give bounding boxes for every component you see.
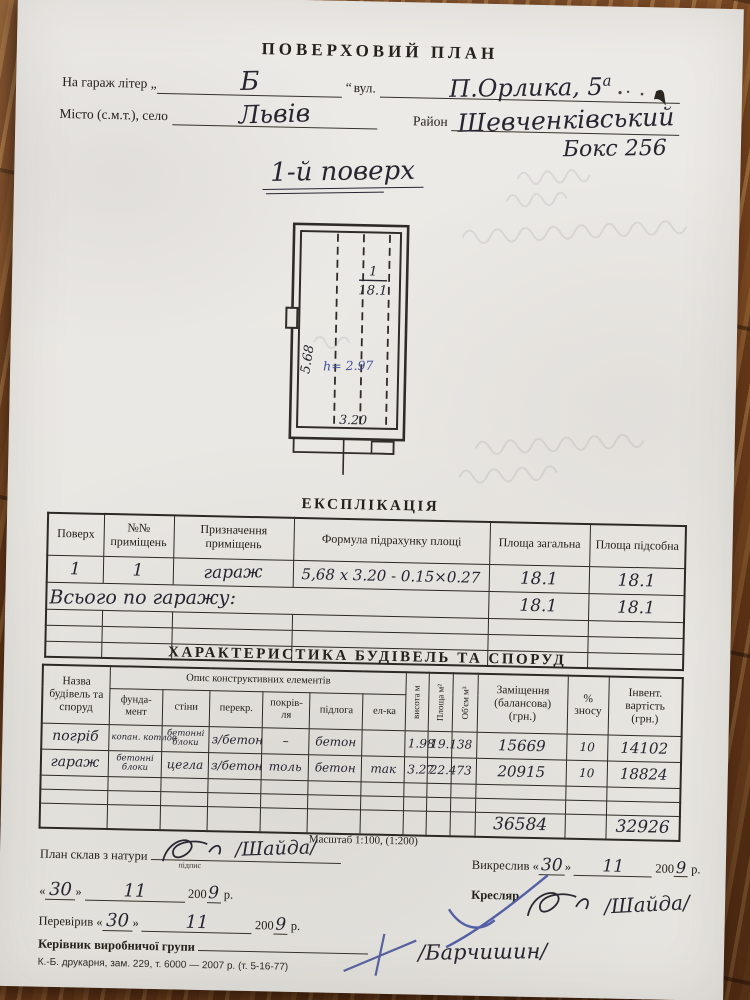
empty-cell <box>404 796 427 810</box>
empty-cell <box>451 783 476 798</box>
empty-cell <box>40 775 108 790</box>
empty-cell <box>161 777 208 792</box>
plan-dim-bottom: 3.20 <box>339 412 367 428</box>
col-header-formula: Формула підрахунку площі <box>293 518 490 564</box>
empty-cell <box>565 814 606 840</box>
paper-sheet: ПОВЕРХОВИЙ ПЛАН На гараж літер „ Б “ вул… <box>0 0 744 1000</box>
col-header-replacement: Заміщення (балансова) (грн.) <box>477 674 568 734</box>
empty-cell <box>161 791 208 806</box>
cell-room-no: 1 <box>103 556 174 584</box>
cell-area: 22.4 <box>427 757 452 784</box>
photo-of-document: ПОВЕРХОВИЙ ПЛАН На гараж літер „ Б “ вул… <box>0 0 750 1000</box>
cell-height: 1.98 <box>405 730 428 756</box>
empty-cell <box>261 793 308 808</box>
col-header-volume: Об'єм м³ <box>453 673 479 732</box>
empty-cell <box>403 810 426 835</box>
empty-cell <box>208 778 261 793</box>
cell-wear: 10 <box>567 734 608 761</box>
cell-walls: цегла <box>161 751 209 778</box>
street-label: вул. <box>354 80 377 96</box>
cell-roof: – <box>262 727 310 754</box>
empty-cell <box>426 811 451 837</box>
date-month: 11 <box>185 912 208 933</box>
empty-cell <box>606 801 680 817</box>
cell-roof: толь <box>261 753 309 780</box>
head-row: Керівник виробничої групи /Барчишин/ <box>38 937 368 959</box>
cell-floor: бетон <box>309 728 363 755</box>
empty-cell <box>207 806 261 832</box>
empty-cell <box>160 805 208 831</box>
cell-inventory: 18824 <box>607 761 681 789</box>
district-line: Шевченківський <box>451 105 679 136</box>
empty-cell <box>565 800 606 815</box>
empty-cell <box>360 809 403 835</box>
quote-close: » <box>75 884 82 898</box>
empty-cell <box>40 803 108 829</box>
head-signature-line: /Барчишин/ <box>198 950 368 955</box>
draftsman-signature: /Шайда/ <box>604 890 691 918</box>
col-header-room-no: №№ приміщень <box>103 514 174 557</box>
cell-inventory: 14102 <box>607 735 681 763</box>
district-value: Шевченківський <box>457 104 675 136</box>
col-header-inventory: Інвент. вартість (грн.) <box>608 677 683 737</box>
quote-close: “ <box>346 80 352 96</box>
plan-room-area: 18.1 <box>358 283 387 299</box>
cell-height: 3.27 <box>405 756 428 782</box>
date-year-digit: 9 <box>208 883 219 903</box>
form-line-city: Місто (с.м.т.), село Львів Район Шевченк… <box>59 97 739 137</box>
garage-letter-line: Б <box>157 67 343 98</box>
city-line: Львів <box>172 99 377 129</box>
col-header-wear: % зносу <box>567 676 609 735</box>
district-label: Район <box>413 113 448 130</box>
col-header-floor: Поверх <box>47 513 104 556</box>
empty-cell <box>307 808 361 834</box>
cell-area-total: 18.1 <box>489 564 590 593</box>
plan-height-note: h= 2.97 <box>323 358 374 374</box>
bleed-through-marks <box>447 418 700 500</box>
col-header-walls: стіни <box>162 689 210 726</box>
empty-cell <box>308 780 361 795</box>
empty-cell <box>108 790 161 805</box>
cell-area-aux: 18.1 <box>589 566 686 595</box>
street-value: П.Орлика, 5а <box>449 74 612 101</box>
cell-electric: так <box>362 755 406 782</box>
col-header-roof: покрів- ля <box>262 691 310 728</box>
col-header-area-aux: Площа підсобна <box>589 524 686 568</box>
plan-dim-left: 5.68 <box>298 344 317 375</box>
head-label: Керівник виробничої групи <box>38 937 195 954</box>
floor-plan-drawing: 1 18.1 5.68 h= 2.97 3.20 <box>281 222 416 481</box>
empty-cell <box>208 792 261 807</box>
date-month: 11 <box>123 880 146 901</box>
empty-cell <box>427 783 452 798</box>
cell-replacement: 15669 <box>477 732 567 760</box>
street-sup: а <box>602 72 611 90</box>
floor-heading-underline <box>266 192 384 195</box>
cell-wear: 10 <box>566 760 607 787</box>
date-day: 30 <box>106 910 129 931</box>
cell-electric <box>362 729 406 756</box>
empty-cell <box>308 794 361 809</box>
empty-cell <box>450 811 475 837</box>
quote-close: » <box>132 916 139 930</box>
col-header-area-total: Площа загальна <box>489 522 590 566</box>
cell-foundation: копан. котлов. <box>109 724 163 751</box>
pen-cross-stroke <box>337 933 428 979</box>
street-line: П.Орлика, 5а <box>380 72 680 104</box>
floor-heading: 1-й поверх <box>262 156 423 190</box>
col-header-electric: ел-ка <box>363 693 407 730</box>
print-shop-footer: К.-Б. друкарня, зам. 229, т. 6000 — 2007… <box>38 957 289 973</box>
city-label: Місто (с.м.т.), село <box>59 106 168 124</box>
cell-total-inventory: 32926 <box>606 814 680 841</box>
door-axis-tick <box>343 439 344 475</box>
col-header-foundation: фунда- мент <box>109 688 163 725</box>
characteristics-table: Назва будівель та споруд Опис конструкти… <box>39 664 684 842</box>
city-value: Львів <box>238 100 310 127</box>
total-label-text: Всього по гаражу: <box>49 586 236 609</box>
garage-label: На гараж літер „ <box>62 74 157 92</box>
year-suffix: р. <box>224 888 234 902</box>
date-day: 30 <box>49 879 72 900</box>
garage-letter-value: Б <box>240 69 259 95</box>
plan-room-number: 1 <box>369 264 378 279</box>
cell-area-aux: 18.1 <box>588 593 685 622</box>
cell-total-replacement: 36584 <box>475 812 565 839</box>
vertical-header-height: висота м <box>412 685 422 719</box>
wall-notch <box>286 308 297 328</box>
col-header-floor: підлога <box>309 692 363 729</box>
year-suffix: р. <box>691 862 701 876</box>
cell-name: погріб <box>41 723 109 750</box>
empty-cell <box>261 779 308 794</box>
empty-cell <box>45 625 101 642</box>
cell-ceiling: з/бетон <box>209 726 263 753</box>
empty-cell <box>108 776 161 791</box>
cell-area-total: 18.1 <box>488 591 589 620</box>
empty-cell <box>101 626 171 643</box>
empty-cell <box>566 786 607 801</box>
empty-cell <box>107 804 161 830</box>
cell-ceiling: з/бетон <box>208 752 262 779</box>
plan-made-label: План склав з натури <box>40 847 148 863</box>
cell-foundation: бетонні блоки <box>108 750 162 777</box>
page-title: ПОВЕРХОВИЙ ПЛАН <box>17 34 743 69</box>
date-year-digit: 9 <box>676 858 687 877</box>
col-header-purpose: Призначення приміщень <box>173 515 294 560</box>
bleed-through-marks <box>457 148 701 250</box>
empty-cell <box>102 610 172 627</box>
cell-purpose: гараж <box>173 558 293 587</box>
drafter-signature: /Шайда/ <box>235 838 317 860</box>
cell-formula: 5,68 х 3.20 - 0.15×0.27 <box>293 560 490 591</box>
col-header-height: висота м <box>406 672 430 730</box>
col-header-name: Назва будівель та споруд <box>42 665 111 724</box>
empty-cell <box>361 795 404 810</box>
year-prefix: 200 <box>188 887 207 901</box>
year-prefix: 200 <box>655 862 674 876</box>
col-header-ceiling: перекр. <box>209 690 263 727</box>
head-signature: /Барчишин/ <box>418 941 548 964</box>
plan-made-row: План склав з натури /Шайда/ підпис <box>40 847 341 868</box>
year-prefix: 200 <box>255 918 274 932</box>
empty-cell <box>46 609 102 626</box>
cell-replacement: 20915 <box>476 758 566 786</box>
empty-cell <box>361 781 404 796</box>
empty-cell <box>404 782 427 796</box>
year-suffix: р. <box>291 919 301 933</box>
plan-made-date-row: «30» 11 2009 р. <box>39 881 233 904</box>
vertical-header-area: Площа м² <box>436 684 446 721</box>
col-header-area: Площа м² <box>428 673 454 732</box>
cell-floor: 1 <box>47 555 104 583</box>
signature-caption: підпис <box>178 862 201 870</box>
checked-label: Перевірив <box>38 914 93 929</box>
empty-cell <box>426 797 451 812</box>
cell-floor: бетон <box>308 754 362 781</box>
cell-name: гараж <box>41 749 109 776</box>
date-month: 11 <box>602 856 624 876</box>
checked-row: Перевірив «30» 11 2009 р. <box>38 911 300 935</box>
empty-cell <box>40 789 108 804</box>
plan-made-signature-line: /Шайда/ підпис <box>151 859 341 864</box>
empty-cell <box>260 807 308 833</box>
empty-cell <box>607 787 681 803</box>
vertical-header-volume: Об'єм м³ <box>460 686 470 719</box>
cell-area: 19.1 <box>428 731 453 758</box>
date-year-digit: 9 <box>275 915 286 935</box>
empty-cell <box>451 797 476 812</box>
